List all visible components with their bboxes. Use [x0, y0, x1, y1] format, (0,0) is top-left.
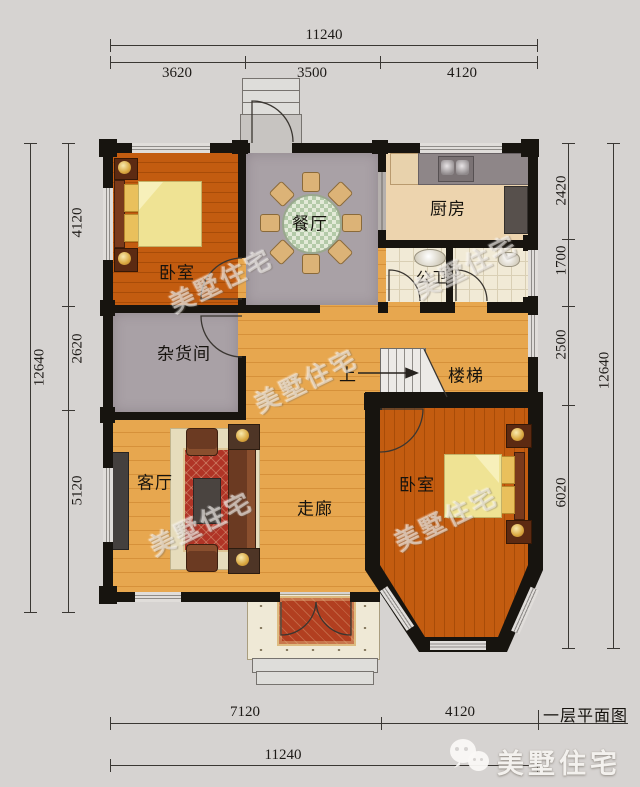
- dim-bottom-seg: 4120: [420, 704, 500, 721]
- dim-bottom-seg: 7120: [205, 704, 285, 721]
- dim-top-total: 11240: [274, 27, 374, 44]
- room-label-dining: 餐厅: [292, 210, 328, 235]
- room-label-corridor: 走廊: [297, 495, 333, 520]
- door-swing-overlay: [0, 0, 640, 787]
- porch-door-arc: [316, 602, 351, 635]
- dim-top-seg: 4120: [422, 65, 502, 82]
- dim-right-seg: 2420: [554, 151, 571, 231]
- room-label-storage: 杂货间: [157, 340, 211, 365]
- dim-right-seg: 6020: [554, 453, 571, 533]
- dimension-line: [110, 62, 538, 63]
- room-label-bedroom-bottom: 卧室: [399, 471, 435, 496]
- dim-top-seg: 3500: [272, 65, 352, 82]
- stairs-diagonal: [424, 349, 447, 397]
- room-label-stairs: 楼梯: [448, 362, 484, 387]
- brand-logo-text: 美墅住宅: [497, 742, 621, 781]
- dim-right-seg: 1700: [554, 221, 571, 301]
- floor-plan-canvas: 卧室 餐厅 厨房 公卫 杂货间 楼梯 上 客厅 走廊 卧室 美墅住宅 美墅住宅 …: [0, 0, 640, 787]
- dimension-line: [110, 45, 538, 46]
- dim-left-seg: 5120: [70, 451, 87, 531]
- dim-right-seg: 2500: [554, 305, 571, 385]
- wechat-icon: [450, 739, 492, 775]
- porch-door-arc: [281, 602, 316, 635]
- room-label-living: 客厅: [137, 469, 173, 494]
- floor-plan-caption: 一层平面图: [543, 702, 628, 726]
- dim-top-seg: 3620: [137, 65, 217, 82]
- dim-left-seg: 4120: [70, 183, 87, 263]
- dim-right-total: 12640: [597, 331, 614, 411]
- dim-left-seg: 2620: [70, 309, 87, 389]
- dim-left-total: 12640: [32, 328, 49, 408]
- room-label-kitchen: 厨房: [430, 195, 466, 220]
- bedroom-bottom-door-arc: [380, 409, 423, 452]
- dim-bottom-total: 11240: [243, 747, 323, 764]
- entry-door-arc: [252, 101, 293, 143]
